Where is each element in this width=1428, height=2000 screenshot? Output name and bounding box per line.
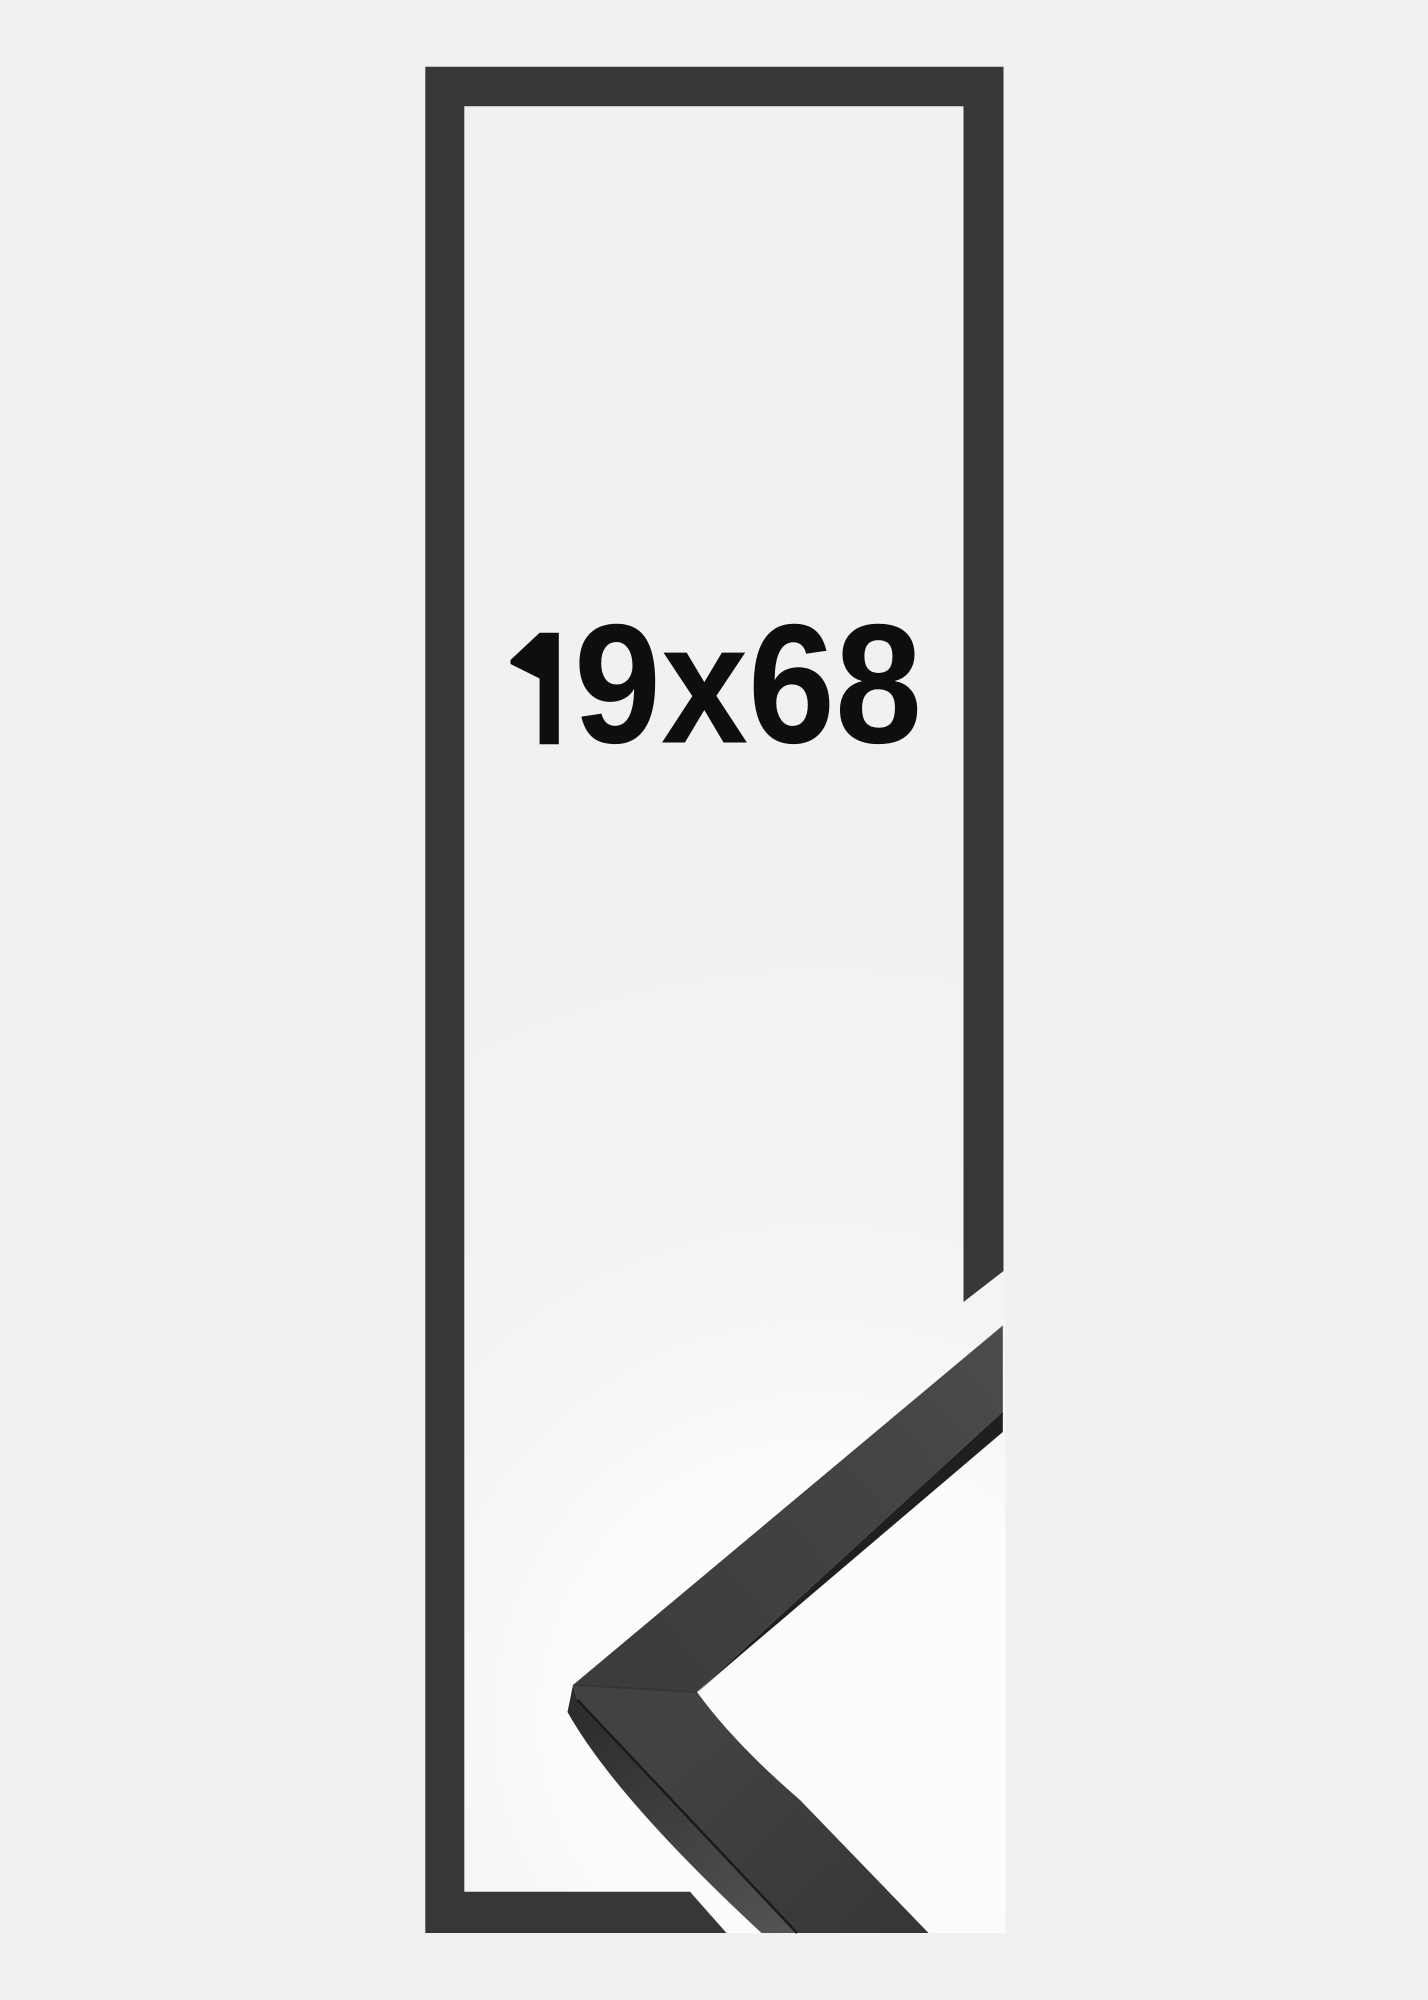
svg-text:9x68: 9x68 <box>574 590 922 780</box>
